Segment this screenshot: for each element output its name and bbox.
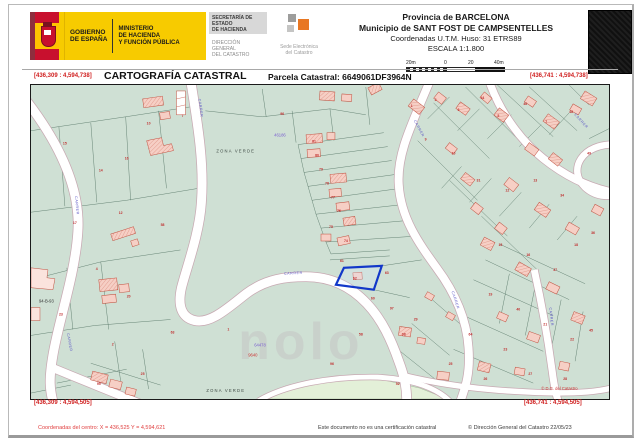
parcel-number: 97 xyxy=(390,307,394,311)
parcel-number: 21 xyxy=(543,322,547,326)
sede-electronica-logo: Sede Electrónica del Catastro xyxy=(274,12,324,64)
parcel-number: 78 xyxy=(325,181,329,185)
parcel-number: 45 xyxy=(589,328,593,332)
parcel-number: 52 xyxy=(396,382,400,386)
escala-label: ESCALA 1:1.800 xyxy=(330,44,582,54)
parcel-number: 40 xyxy=(516,308,520,312)
parcel-number: 25 xyxy=(141,372,145,376)
parcel-number: 13 xyxy=(533,178,537,182)
parcel-number: 29 xyxy=(414,318,418,322)
parcel-number: 27 xyxy=(528,372,532,376)
parcel-number: 26 xyxy=(483,377,487,381)
parcel-number: 23 xyxy=(503,347,507,351)
parcel-number: 22 xyxy=(570,337,574,341)
parcel-number: 75 xyxy=(329,225,333,229)
scale-tick: 40m xyxy=(494,60,504,66)
area-label: 64478 xyxy=(254,342,266,347)
parcel-number: 44 xyxy=(481,96,485,100)
map-corner-coordinate-bottom-right: [436,741 : 4,594,505] xyxy=(524,400,582,406)
page-title: CARTOGRAFÍA CATASTRAL xyxy=(104,70,247,82)
parcel-number: 2 xyxy=(435,98,437,102)
provincia-label: Provincia de BARCELONA xyxy=(330,12,582,23)
parcel-number: 46 xyxy=(523,102,527,106)
sede-gray-square-icon xyxy=(288,14,296,22)
parcel-number: 7 xyxy=(182,114,184,118)
map-corner-coordinate-top-right: [436,741 : 4,594,738] xyxy=(530,73,588,79)
cadastral-map-document: GOBIERNO DE ESPAÑA MINISTERIO DE HACIEND… xyxy=(0,0,640,441)
parcel-number: 7 xyxy=(545,120,547,124)
parcel-number: 1 xyxy=(411,104,413,108)
area-label: 46186 xyxy=(274,133,286,138)
parcela-catastral-label: Parcela Catastral: 6649061DF3964N xyxy=(268,72,412,82)
map-corner-coordinate-top-left: [436,309 : 4,594,738] xyxy=(34,73,92,79)
parcel-number: 10 xyxy=(452,152,456,156)
parcel-number: 37 xyxy=(553,268,557,272)
spain-flag-icon xyxy=(30,12,65,60)
location-header: Provincia de BARCELONA Municipio de SANT… xyxy=(330,12,582,54)
parcel-number: 58 xyxy=(161,223,165,227)
parcel-number: 25 xyxy=(449,362,453,366)
parcel-number: 81 xyxy=(312,140,316,144)
parcel-number: 2 xyxy=(112,342,114,346)
sede-orange-square-icon xyxy=(298,19,309,30)
parcel-number: 48 xyxy=(569,110,573,114)
cadastral-map-canvas: nolo CARRERCARRERCARRERCARRERCARRERCARRE… xyxy=(30,84,610,400)
parcel-number: 10 xyxy=(147,122,151,126)
sede-small-square-icon xyxy=(287,25,294,32)
area-label: 94-B-93 xyxy=(39,299,54,304)
scale-tick: 20 xyxy=(468,60,474,66)
parcel-number: 96 xyxy=(280,112,284,116)
scale-tick: 0 xyxy=(444,60,447,66)
parcel-number: 9 xyxy=(425,138,427,142)
parcel-number: 79 xyxy=(319,167,323,171)
parcel-number: 80 xyxy=(315,154,319,158)
parcel-number: 98 xyxy=(402,332,406,336)
parcel-number: 60 xyxy=(371,297,375,301)
secretaria-box: SECRETARÍA DE ESTADO DE HACIENDA xyxy=(209,12,267,34)
parcel-number: 15 xyxy=(498,243,502,247)
center-coordinates-label: Coordenadas del centro: X = 436,525 Y = … xyxy=(38,425,165,431)
area-label: ZONA VERDE xyxy=(206,388,245,393)
parcel-number: 23 xyxy=(59,313,63,317)
parcel-number: 96 xyxy=(330,362,334,366)
coordenadas-label: Coordenadas U.T.M. Huso: 31 ETRS89 xyxy=(330,34,582,44)
map-svg: nolo CARRERCARRERCARRERCARRERCARRERCARRE… xyxy=(31,85,609,399)
municipio-label: Municipio de SANT FOST DE CAMPSENTELLES xyxy=(330,23,582,34)
parcel-number: 34 xyxy=(560,193,564,197)
scale-tick: 20m xyxy=(406,60,416,66)
parcel-number: 76 xyxy=(337,209,341,213)
parcel-number: 19 xyxy=(488,293,492,297)
qr-code xyxy=(588,10,632,74)
sede-label: Sede Electrónica del Catastro xyxy=(274,44,324,56)
disclaimer-label: Este documento no es una certificación c… xyxy=(318,425,436,431)
parcel-number: 17 xyxy=(73,221,77,225)
parcel-number: 16 xyxy=(526,253,530,257)
copyright-label: © Dirección General del Catastro 22/05/2… xyxy=(468,425,572,431)
parcel-number: 3 xyxy=(458,108,460,112)
gobierno-label: GOBIERNO DE ESPAÑA xyxy=(65,29,112,43)
parcel-number: 1 xyxy=(227,327,229,331)
area-label: 9640 xyxy=(248,352,258,357)
parcel-number: 5 xyxy=(497,114,499,118)
parcel-number: 36 xyxy=(591,231,595,235)
parcel-number: 95 xyxy=(97,382,101,386)
parcel-number: 20 xyxy=(127,295,131,299)
parcel-number: 61 xyxy=(340,259,344,263)
parcel-number: 31 xyxy=(477,178,481,182)
parcel-number: 62 xyxy=(353,277,357,281)
parcel-number: 16 xyxy=(125,157,129,161)
scale-bar: 20m 0 20 40m xyxy=(406,60,510,74)
parcel-number: 77 xyxy=(331,195,335,199)
gobierno-de-espana-logo: GOBIERNO DE ESPAÑA MINISTERIO DE HACIEND… xyxy=(30,12,206,60)
area-label: ZONA VERDE xyxy=(216,149,255,154)
parcel-number: 63 xyxy=(385,271,389,275)
parcel-number: 12 xyxy=(119,211,123,215)
parcel-number: 15 xyxy=(63,142,67,146)
ministerio-label: MINISTERIO DE HACIENDA Y FUNCIÓN PÚBLICA xyxy=(113,26,184,47)
parcel-number: 74 xyxy=(344,239,348,243)
parcel-number: 4 xyxy=(96,267,98,271)
parcel-number: 28 xyxy=(563,377,567,381)
map-corner-coordinate-bottom-left: [436,309 : 4,594,505] xyxy=(34,400,92,406)
parcel-number: 58 xyxy=(359,332,363,336)
direccion-general-box: DIRECCIÓN GENERAL DEL CATASTRO xyxy=(209,40,267,58)
parcel-number: 63 xyxy=(171,330,175,334)
parcel-number: 18 xyxy=(574,243,578,247)
parcel-number: 14 xyxy=(99,168,103,172)
parcel-number: 49 xyxy=(587,152,591,156)
parcel-number: 64 xyxy=(469,332,473,336)
watermark: nolo xyxy=(238,312,363,370)
area-label: © D.G. del Catastro xyxy=(541,386,578,391)
highlighted-parcel-6649061DF3964N xyxy=(336,266,382,290)
parcel-number: 12 xyxy=(505,188,509,192)
